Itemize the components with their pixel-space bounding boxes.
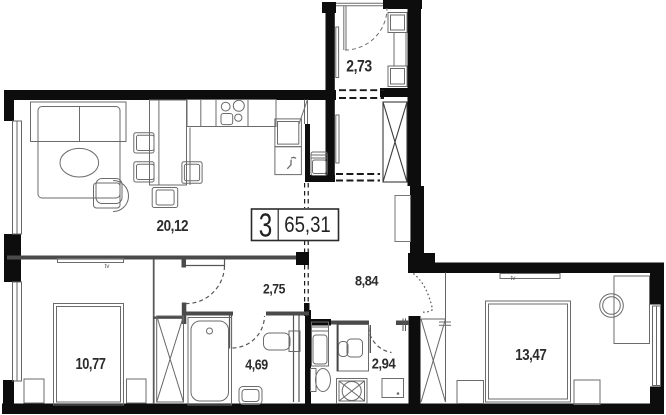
svg-text:2,73: 2,73 (346, 58, 372, 76)
svg-text:2,94: 2,94 (372, 357, 396, 373)
svg-text:4,69: 4,69 (245, 358, 268, 374)
svg-text:8,84: 8,84 (355, 273, 379, 289)
svg-text:tv: tv (511, 276, 516, 282)
svg-text:2,75: 2,75 (263, 281, 286, 297)
svg-text:65,31: 65,31 (284, 212, 331, 237)
svg-text:20,12: 20,12 (157, 218, 189, 235)
svg-text:10,77: 10,77 (76, 356, 106, 373)
svg-text:tv: tv (105, 264, 110, 270)
svg-text:3: 3 (259, 207, 273, 244)
svg-text:13,47: 13,47 (515, 347, 546, 364)
